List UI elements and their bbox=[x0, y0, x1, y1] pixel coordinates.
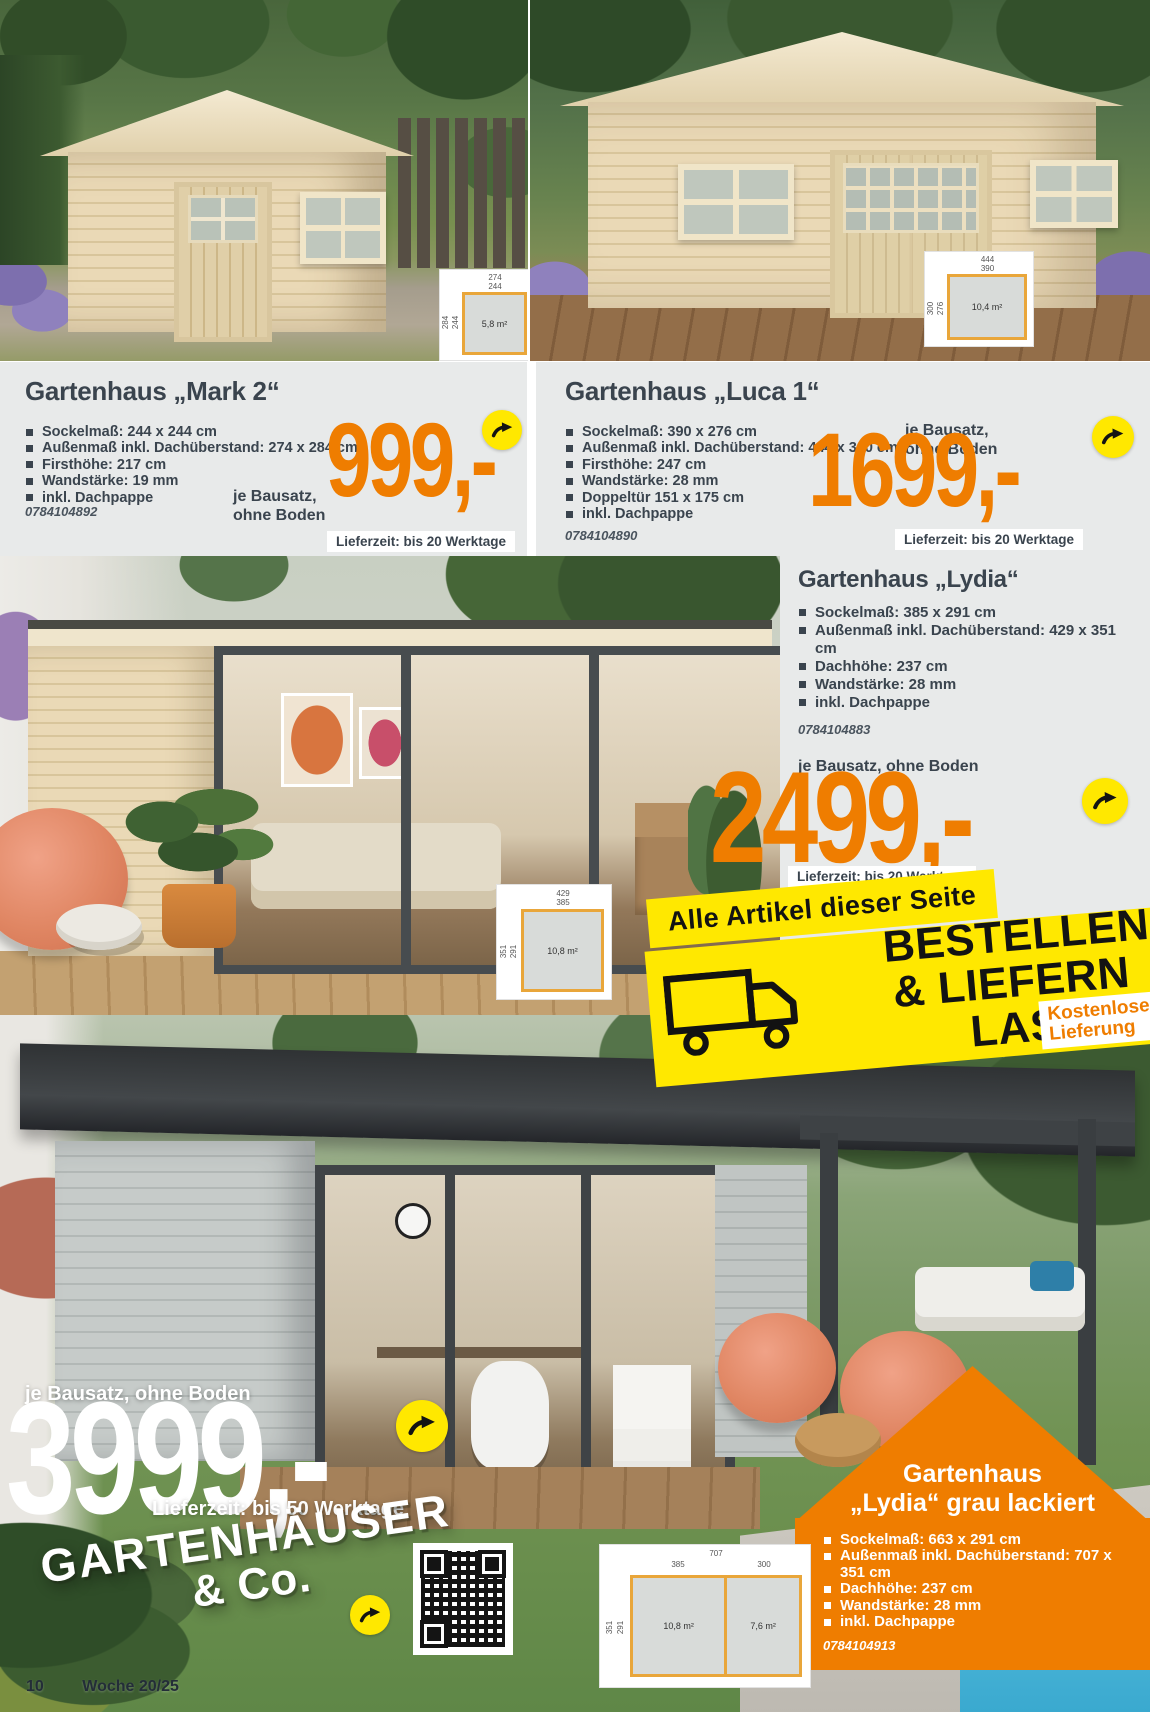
article-number: 0784104892 bbox=[25, 504, 97, 519]
unit-note: je Bausatz, ohne Boden bbox=[233, 488, 325, 525]
order-arrow-icon bbox=[396, 1400, 448, 1452]
plan-area-label: 10,8 m² bbox=[547, 946, 578, 956]
coral-chair bbox=[718, 1313, 836, 1423]
plan-dim-left-width: 385 bbox=[630, 1560, 726, 1569]
spec-item: inkl. Dachpappe bbox=[823, 1614, 1123, 1630]
qr-finder bbox=[420, 1550, 448, 1578]
price-luca1: 1699,- bbox=[808, 418, 1018, 523]
plan-dim-inner-depth: 291 bbox=[616, 1621, 625, 1634]
spec-item: Wandstärke: 28 mm bbox=[823, 1598, 1123, 1614]
plan-area-label: 10,8 m² bbox=[663, 1621, 694, 1631]
product-photo-mark2: 274 244 284 244 5,8 m² bbox=[0, 0, 528, 361]
title-line2: „Lydia“ grau lackiert bbox=[795, 1489, 1150, 1518]
week-label: Woche 20/25 bbox=[82, 1678, 179, 1695]
plan-drawing: 10,8 m² bbox=[521, 909, 604, 992]
desk bbox=[377, 1347, 587, 1358]
roof bbox=[40, 90, 414, 156]
window-mullion bbox=[401, 655, 411, 965]
garden-fence bbox=[398, 118, 528, 268]
article-number: 0784104883 bbox=[798, 722, 870, 737]
plan-dim-outer-depth: 351 bbox=[605, 1621, 614, 1634]
plan-dim-inner-depth: 244 bbox=[451, 316, 460, 329]
window-mullion bbox=[445, 1175, 455, 1515]
spec-item: Außenmaß inkl. Dachüberstand: 707 x 351 … bbox=[823, 1548, 1123, 1581]
roof bbox=[560, 32, 1124, 106]
sofa bbox=[251, 823, 501, 909]
page-number: 10 bbox=[26, 1678, 44, 1695]
plan-area-label: 5,8 m² bbox=[482, 319, 508, 329]
floorplan-lydia: 429 385 351 291 10,8 m² bbox=[497, 885, 611, 999]
spec-item: Sockelmaß: 663 x 291 cm bbox=[823, 1532, 1123, 1548]
flat-roof bbox=[28, 620, 772, 646]
plan-drawing: 10,8 m² 7,6 m² bbox=[630, 1575, 802, 1677]
spec-list-lydia-grau: Sockelmaß: 663 x 291 cmAußenmaß inkl. Da… bbox=[823, 1532, 1123, 1630]
plant-pot bbox=[162, 884, 236, 948]
qr-finder bbox=[478, 1550, 506, 1578]
plan-dim-inner-width: 385 bbox=[521, 898, 605, 907]
product-title-luca1: Gartenhaus „Luca 1“ bbox=[565, 376, 819, 407]
plan-dim-outer-depth: 351 bbox=[499, 945, 508, 958]
side-table bbox=[56, 904, 142, 950]
price-lydia: 2499,- bbox=[710, 752, 970, 882]
spec-item: inkl. Dachpappe bbox=[798, 694, 1128, 712]
plan-dim-inner-depth: 291 bbox=[509, 945, 518, 958]
qr-finder bbox=[420, 1620, 448, 1648]
article-number: 0784104913 bbox=[823, 1638, 895, 1653]
flyer-page: 274 244 284 244 5,8 m² 444 390 300 276 1… bbox=[0, 0, 1150, 1712]
house-window-right bbox=[1030, 160, 1118, 228]
house-window-left bbox=[678, 164, 794, 240]
plan-drawing: 5,8 m² bbox=[462, 292, 527, 355]
qr-code[interactable] bbox=[413, 1543, 513, 1655]
order-arrow-icon bbox=[350, 1595, 390, 1635]
order-arrow-icon bbox=[1092, 416, 1134, 458]
order-arrow-icon bbox=[482, 410, 522, 450]
price-mark2: 999,- bbox=[326, 408, 494, 513]
plan-dim-outer-depth: 284 bbox=[441, 316, 450, 329]
spec-list-lydia: Sockelmaß: 385 x 291 cmAußenmaß inkl. Da… bbox=[798, 604, 1128, 712]
title-line1: Gartenhaus bbox=[795, 1460, 1150, 1489]
plan-dim-inner-width: 244 bbox=[462, 282, 528, 291]
window-mullion bbox=[581, 1175, 591, 1515]
unit-note-line2: ohne Boden bbox=[233, 507, 325, 526]
delivery-time: Lieferzeit: bis 20 Werktage bbox=[895, 529, 1083, 550]
plan-dim-outer-width: 444 bbox=[947, 255, 1028, 264]
delivery-truck-icon bbox=[663, 963, 818, 1058]
plan-dim-outer-depth: 300 bbox=[926, 302, 935, 315]
product-title-lydia-grau: Gartenhaus „Lydia“ grau lackiert bbox=[795, 1460, 1150, 1518]
product-title-lydia: Gartenhaus „Lydia“ bbox=[798, 566, 1018, 594]
plan-area-label: 10,4 m² bbox=[972, 302, 1003, 312]
garden-house-mark2-illustration bbox=[56, 90, 398, 332]
house-window bbox=[300, 192, 386, 264]
office-chair bbox=[471, 1361, 549, 1469]
page-footer: 10 Woche 20/25 bbox=[26, 1678, 179, 1696]
plan-dim-total-width: 707 bbox=[630, 1549, 802, 1558]
spec-item: Dachhöhe: 237 cm bbox=[823, 1581, 1123, 1597]
plan-dim-outer-width: 274 bbox=[462, 273, 528, 282]
article-number: 0784104890 bbox=[565, 528, 637, 543]
plan-room-right: 7,6 m² bbox=[727, 1578, 799, 1674]
free-delivery-note: Kostenlose Lieferung bbox=[1038, 991, 1150, 1049]
plan-dim-outer-width: 429 bbox=[521, 889, 605, 898]
pillow bbox=[1030, 1261, 1074, 1291]
spec-item: Dachhöhe: 237 cm bbox=[798, 658, 1128, 676]
plan-drawing: 10,4 m² bbox=[947, 274, 1027, 340]
plan-dim-inner-depth: 276 bbox=[936, 302, 945, 315]
wall-clock bbox=[395, 1203, 431, 1239]
plan-dim-right-width: 300 bbox=[726, 1560, 802, 1569]
column-divider bbox=[527, 362, 536, 556]
delivery-time: Lieferzeit: bis 20 Werktage bbox=[327, 531, 515, 552]
wall-art bbox=[281, 693, 353, 787]
unit-note-line1: je Bausatz, bbox=[233, 488, 325, 507]
product-photo-luca1: 444 390 300 276 10,4 m² bbox=[530, 0, 1150, 361]
floorplan-lydia-grau: 707 385 300 351 291 10,8 m² 7,6 m² bbox=[600, 1545, 810, 1687]
plan-dim-inner-width: 390 bbox=[947, 264, 1028, 273]
order-arrow-icon bbox=[1082, 778, 1128, 824]
product-title-mark2: Gartenhaus „Mark 2“ bbox=[25, 376, 279, 407]
spec-item: Sockelmaß: 385 x 291 cm bbox=[798, 604, 1128, 622]
spec-item: Wandstärke: 28 mm bbox=[798, 676, 1128, 694]
plan-area-label: 7,6 m² bbox=[750, 1621, 776, 1631]
floorplan-mark2: 274 244 284 244 5,8 m² bbox=[440, 270, 528, 360]
spec-item: Außenmaß inkl. Dachüberstand: 429 x 351 … bbox=[798, 622, 1128, 658]
house-door bbox=[174, 182, 272, 342]
plan-room-left: 10,8 m² bbox=[633, 1578, 727, 1674]
floorplan-luca1: 444 390 300 276 10,4 m² bbox=[925, 252, 1033, 346]
